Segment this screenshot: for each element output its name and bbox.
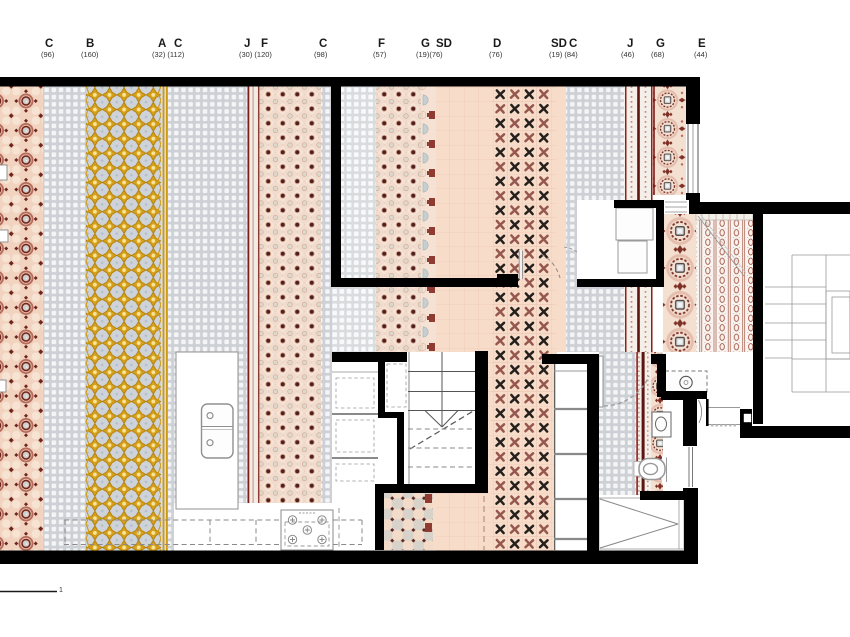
svg-text:(30) (120): (30) (120) xyxy=(239,50,272,59)
svg-text:(76): (76) xyxy=(489,50,503,59)
svg-text:(57): (57) xyxy=(373,50,387,59)
svg-text:(19) (84): (19) (84) xyxy=(549,50,578,59)
svg-text:A: A xyxy=(158,38,166,50)
svg-text:F: F xyxy=(261,38,268,50)
svg-text:1: 1 xyxy=(59,587,63,594)
svg-text:(44): (44) xyxy=(694,50,708,59)
svg-text:(32) (112): (32) (112) xyxy=(152,50,185,59)
svg-text:B: B xyxy=(86,38,94,50)
svg-text:E: E xyxy=(698,38,706,50)
svg-text:J: J xyxy=(244,38,250,50)
svg-text:D: D xyxy=(493,38,501,50)
svg-text:(46): (46) xyxy=(621,50,635,59)
svg-text:G: G xyxy=(656,38,665,50)
svg-text:SD: SD xyxy=(436,38,452,50)
svg-text:SD: SD xyxy=(551,38,567,50)
svg-text:F: F xyxy=(378,38,385,50)
svg-text:(98): (98) xyxy=(314,50,328,59)
svg-text:(19)(76): (19)(76) xyxy=(416,50,443,59)
svg-text:C: C xyxy=(174,38,182,50)
svg-text:(96): (96) xyxy=(41,50,55,59)
svg-text:C: C xyxy=(569,38,577,50)
svg-text:C: C xyxy=(319,38,327,50)
svg-text:(68): (68) xyxy=(651,50,665,59)
svg-text:C: C xyxy=(45,38,53,50)
svg-text:G: G xyxy=(421,38,430,50)
svg-text:(160): (160) xyxy=(81,50,99,59)
svg-text:J: J xyxy=(627,38,633,50)
